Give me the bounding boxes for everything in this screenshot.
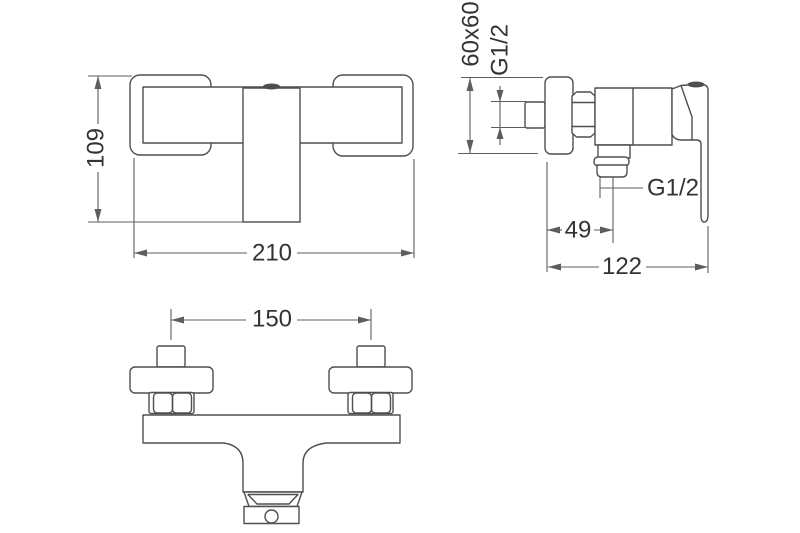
technical-drawing: 109 210 60x60 (0, 0, 800, 533)
bottom-spout-body (244, 507, 299, 524)
dim-side-outlet-thread-label: G1/2 (647, 175, 699, 202)
side-wall-plate (545, 77, 573, 154)
side-outlet-nut (598, 145, 630, 158)
dim-side-plate-label: 60x60 (458, 1, 485, 66)
dim-front-width-label: 210 (252, 240, 292, 267)
bottom-left-nut (149, 393, 194, 414)
front-view (130, 75, 413, 222)
dim-bottom-spacing-label: 150 (252, 306, 292, 333)
bottom-view (130, 346, 412, 524)
front-handle (243, 88, 300, 222)
bottom-left-escutcheon (130, 367, 213, 393)
bottom-right-escutcheon (329, 367, 412, 393)
dim-side-depth-label: 122 (602, 253, 642, 280)
bottom-left-stub (157, 346, 185, 367)
bottom-view-dimensions: 150 (171, 306, 371, 341)
bottom-right-nut (348, 393, 393, 414)
dim-side-offset-label: 49 (565, 217, 592, 244)
front-handle-cap (263, 84, 280, 90)
bottom-body-bar (143, 415, 400, 492)
side-outlet-thread (597, 165, 627, 177)
dim-front-height-label: 109 (83, 128, 110, 168)
side-hex-nut (572, 92, 595, 137)
dim-side-inlet-thread-label: G1/2 (487, 24, 514, 76)
bottom-right-stub (357, 346, 385, 367)
side-handle-cap (688, 82, 705, 88)
side-inlet-stub (525, 102, 545, 128)
